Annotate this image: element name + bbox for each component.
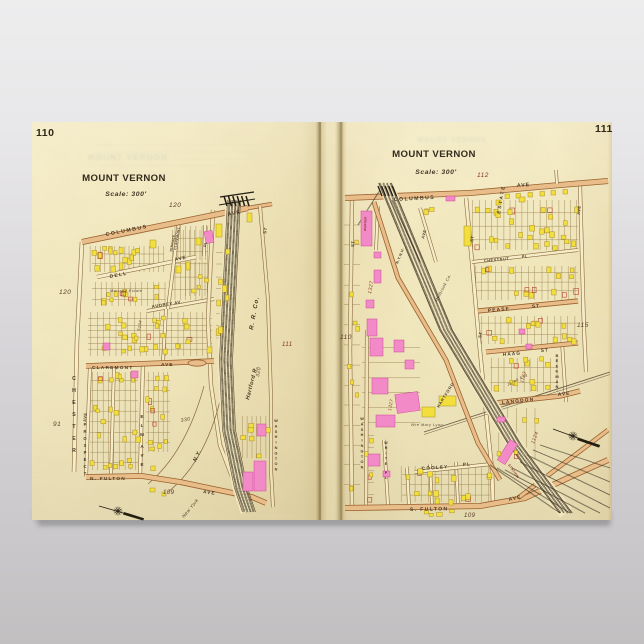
svg-text:H: H [361,433,364,437]
svg-text:M: M [140,432,144,437]
svg-text:N. FULTON: N. FULTON [90,476,126,482]
svg-text:N: N [361,444,364,448]
svg-text:120: 120 [59,289,71,296]
svg-text:ST: ST [477,331,483,338]
svg-text:112: 112 [477,172,489,179]
svg-text:120: 120 [169,202,181,209]
svg-text:G: G [275,451,278,455]
svg-text:AVE: AVE [161,362,174,368]
svg-text:115: 115 [577,322,589,329]
svg-text:MOUNT VERNON: MOUNT VERNON [82,173,166,184]
svg-text:110: 110 [340,334,352,341]
svg-text:E: E [140,462,143,467]
svg-text:MOUNT VERNON: MOUNT VERNON [392,149,476,160]
svg-text:S: S [84,443,87,448]
svg-text:W: W [274,419,278,423]
svg-text:E: E [84,457,87,462]
svg-text:A: A [361,422,364,426]
svg-text:E: E [140,414,143,419]
svg-text:AVE: AVE [576,205,582,215]
svg-text:110: 110 [36,127,54,139]
svg-text:ST: ST [532,303,541,310]
svg-text:N: N [361,466,364,470]
svg-text:I: I [386,451,387,455]
svg-text:Wre Mary Lyon: Wre Mary Lyon [411,423,443,427]
svg-text:L: L [141,423,144,428]
svg-text:Marlane Estate: Marlane Estate [110,289,143,293]
svg-text:111: 111 [595,123,613,135]
svg-text:S: S [361,428,364,432]
svg-text:PL: PL [522,254,528,259]
svg-text:Scale: 300′: Scale: 300′ [415,169,456,176]
svg-text:A: A [275,424,278,428]
svg-text:H: H [275,435,278,439]
svg-text:E: E [72,400,76,406]
svg-text:H: H [385,446,388,450]
svg-text:I: I [275,441,276,445]
svg-text:MOUNT VERNON: MOUNT VERNON [417,137,487,144]
svg-text:N: N [556,384,559,389]
svg-text:AVE: AVE [517,182,531,189]
svg-text:S. FULTON: S. FULTON [410,506,449,513]
svg-text:109: 109 [163,490,175,496]
svg-text:ST: ST [350,240,356,247]
svg-text:E: E [72,436,76,442]
svg-text:G: G [361,449,364,453]
svg-text:W: W [384,441,388,445]
svg-text:R: R [72,448,76,454]
svg-text:PL: PL [463,461,471,467]
svg-text:N: N [275,468,278,472]
svg-text:WARNER: WARNER [363,216,368,231]
svg-text:CLAREMONT: CLAREMONT [92,365,133,371]
svg-text:S: S [72,412,76,418]
svg-text:ST: ST [469,235,475,242]
svg-text:111: 111 [282,342,293,348]
svg-text:91: 91 [53,421,61,428]
svg-text:S: S [275,430,278,434]
svg-text:ST: ST [541,347,549,353]
svg-text:N: N [275,446,278,450]
svg-text:H: H [72,388,76,394]
svg-text:O: O [361,460,364,464]
svg-text:AVE: AVE [82,412,88,422]
svg-text:O: O [275,462,278,466]
svg-text:P: P [84,450,87,455]
svg-text:Scale: 300′: Scale: 300′ [105,191,146,198]
svg-text:C: C [72,376,76,382]
svg-text:T: T [84,471,87,476]
svg-text:109: 109 [464,513,476,519]
svg-text:MOUNT VERNON: MOUNT VERNON [88,153,168,162]
svg-text:W: W [360,417,364,421]
svg-text:C: C [83,464,86,469]
svg-text:R: R [83,429,86,434]
svg-text:I: I [361,439,362,443]
